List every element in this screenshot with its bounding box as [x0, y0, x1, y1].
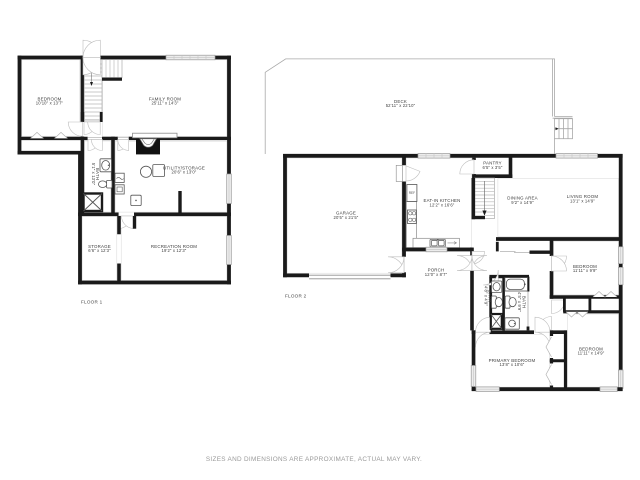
svg-text:SIZES AND DIMENSIONS ARE APPRO: SIZES AND DIMENSIONS ARE APPROXIMATE, AC…	[206, 456, 422, 463]
svg-text:52'11" x 22'10": 52'11" x 22'10"	[386, 103, 416, 108]
svg-text:13'1" x 14'9": 13'1" x 14'9"	[570, 198, 595, 203]
svg-text:6'6" x 12'3": 6'6" x 12'3"	[88, 248, 111, 253]
svg-text:20'6" x 13'0": 20'6" x 13'0"	[172, 170, 197, 175]
svg-text:25'11" x 14'3": 25'11" x 14'3"	[151, 101, 178, 106]
svg-text:4'8" x 4'9": 4'8" x 4'9"	[483, 286, 488, 306]
svg-text:12'2" x 16'6": 12'2" x 16'6"	[430, 202, 455, 207]
svg-text:6'5" x 3'5": 6'5" x 3'5"	[483, 165, 503, 170]
svg-text:20'5" x 21'5": 20'5" x 21'5"	[334, 215, 359, 220]
svg-text:19'2" x 12'3": 19'2" x 12'3"	[162, 248, 187, 253]
svg-text:FLOOR 2: FLOOR 2	[285, 294, 307, 299]
svg-text:11'11" x 14'9": 11'11" x 14'9"	[578, 351, 605, 356]
svg-text:12'0" x 8'7": 12'0" x 8'7"	[425, 272, 448, 277]
svg-text:9'2" x 14'9": 9'2" x 14'9"	[511, 200, 534, 205]
svg-text:FLOOR 1: FLOOR 1	[81, 300, 103, 305]
svg-text:5'1" x 13'0": 5'1" x 13'0"	[91, 163, 96, 186]
svg-text:13'8" x 10'6": 13'8" x 10'6"	[500, 362, 525, 367]
svg-text:10'10" x 13'7": 10'10" x 13'7"	[36, 101, 64, 106]
svg-text:4'5" x 9'9": 4'5" x 9'9"	[517, 292, 522, 312]
svg-text:REF: REF	[409, 191, 415, 195]
svg-text:11'11" x 9'9": 11'11" x 9'9"	[573, 268, 598, 273]
